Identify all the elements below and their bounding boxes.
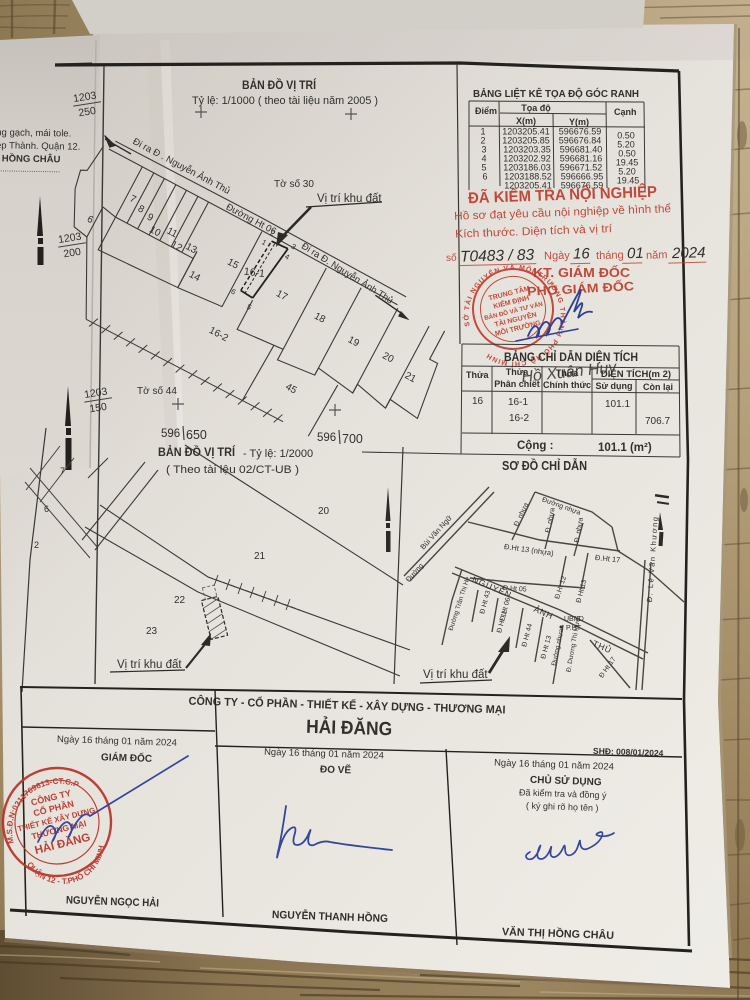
svg-text:16-1: 16-1: [243, 266, 265, 280]
svg-text:ng gạch, mái tole.: ng gạch, mái tole.: [0, 127, 71, 139]
svg-text:21: 21: [254, 551, 266, 562]
svg-text:6: 6: [44, 504, 49, 514]
svg-text:( Theo tài lệu 02/CT-UB ): ( Theo tài lệu 02/CT-UB ): [166, 464, 299, 476]
svg-text:7: 7: [60, 466, 65, 476]
svg-text:596: 596: [317, 432, 336, 444]
svg-text:16-2: 16-2: [509, 413, 529, 424]
svg-text:P.HT: P.HT: [566, 625, 582, 632]
svg-text:22: 22: [174, 595, 186, 606]
svg-text:Tỷ lệ: 1/1000 ( theo tài liệu: Tỷ lệ: 1/1000 ( theo tài liệu năm 2005 ): [192, 95, 378, 107]
svg-text:16-1: 16-1: [508, 397, 528, 408]
svg-text:.............................: .............................: [0, 164, 60, 174]
svg-text:Vị trí khu đất: Vị trí khu đất: [423, 669, 488, 681]
svg-text:Cạnh: Cạnh: [614, 107, 637, 117]
svg-text:ệp Thành. Quận 12.: ệp Thành. Quận 12.: [0, 140, 80, 152]
svg-text:Tờ số 30: Tờ số 30: [274, 178, 314, 190]
svg-text:Sử dụng: Sử dụng: [595, 381, 632, 391]
svg-text:6: 6: [482, 172, 487, 182]
svg-text:Còn lại: Còn lại: [643, 382, 673, 392]
svg-text:Điểm: Điểm: [475, 106, 497, 116]
svg-text:20: 20: [318, 506, 330, 517]
svg-text:101.1: 101.1: [605, 399, 630, 410]
svg-text:HỒNG CHÂU: HỒNG CHÂU: [2, 152, 61, 165]
svg-text:2: 2: [34, 540, 39, 550]
svg-text:Vị trí khu đất: Vị trí khu đất: [117, 659, 182, 671]
svg-text:700: 700: [342, 432, 363, 446]
svg-text:số: số: [446, 252, 457, 264]
svg-text:596: 596: [161, 428, 180, 440]
svg-text:BẢNG CHỈ DẪN DIỆN TÍCH: BẢNG CHỈ DẪN DIỆN TÍCH: [504, 351, 638, 364]
svg-text:Y(m): Y(m): [569, 117, 589, 127]
svg-text:BẢN ĐỒ VỊ TRÍ: BẢN ĐỒ VỊ TRÍ: [242, 77, 317, 92]
svg-text:2024: 2024: [671, 244, 706, 262]
svg-text:Ngày: Ngày: [544, 250, 570, 263]
svg-text:16: 16: [573, 245, 591, 262]
svg-text:ĐO VẼ: ĐO VẼ: [320, 762, 352, 776]
svg-text:101.1 (m²): 101.1 (m²): [598, 442, 652, 454]
svg-text:Thửa: Thửa: [466, 370, 490, 380]
svg-text:650: 650: [186, 428, 207, 442]
svg-text:23: 23: [146, 626, 158, 637]
svg-text:16: 16: [472, 396, 484, 407]
svg-text:UBND: UBND: [564, 616, 584, 623]
svg-text:Tờ số 44: Tờ số 44: [137, 385, 177, 397]
svg-text:tháng: tháng: [596, 249, 624, 262]
svg-text:năm: năm: [646, 249, 668, 262]
svg-text:01: 01: [627, 245, 644, 262]
svg-text:SƠ ĐỒ CHỈ DẪN: SƠ ĐỒ CHỈ DẪN: [502, 458, 587, 473]
svg-text:Tọa độ: Tọa độ: [521, 103, 551, 113]
svg-text:706.7: 706.7: [645, 416, 670, 427]
svg-text:X(m): X(m): [516, 116, 536, 126]
svg-text:T0483 / 83: T0483 / 83: [460, 247, 535, 266]
svg-text:BẢNG LIỆT KÊ TỌA ĐỘ GÓC RANH: BẢNG LIỆT KÊ TỌA ĐỘ GÓC RANH: [473, 87, 639, 100]
svg-text:HẢI ĐĂNG: HẢI ĐĂNG: [306, 716, 393, 740]
svg-text:- Tỷ lệ: 1/2000: - Tỷ lệ: 1/2000: [243, 448, 313, 460]
svg-text:Cộng :: Cộng :: [517, 440, 553, 452]
